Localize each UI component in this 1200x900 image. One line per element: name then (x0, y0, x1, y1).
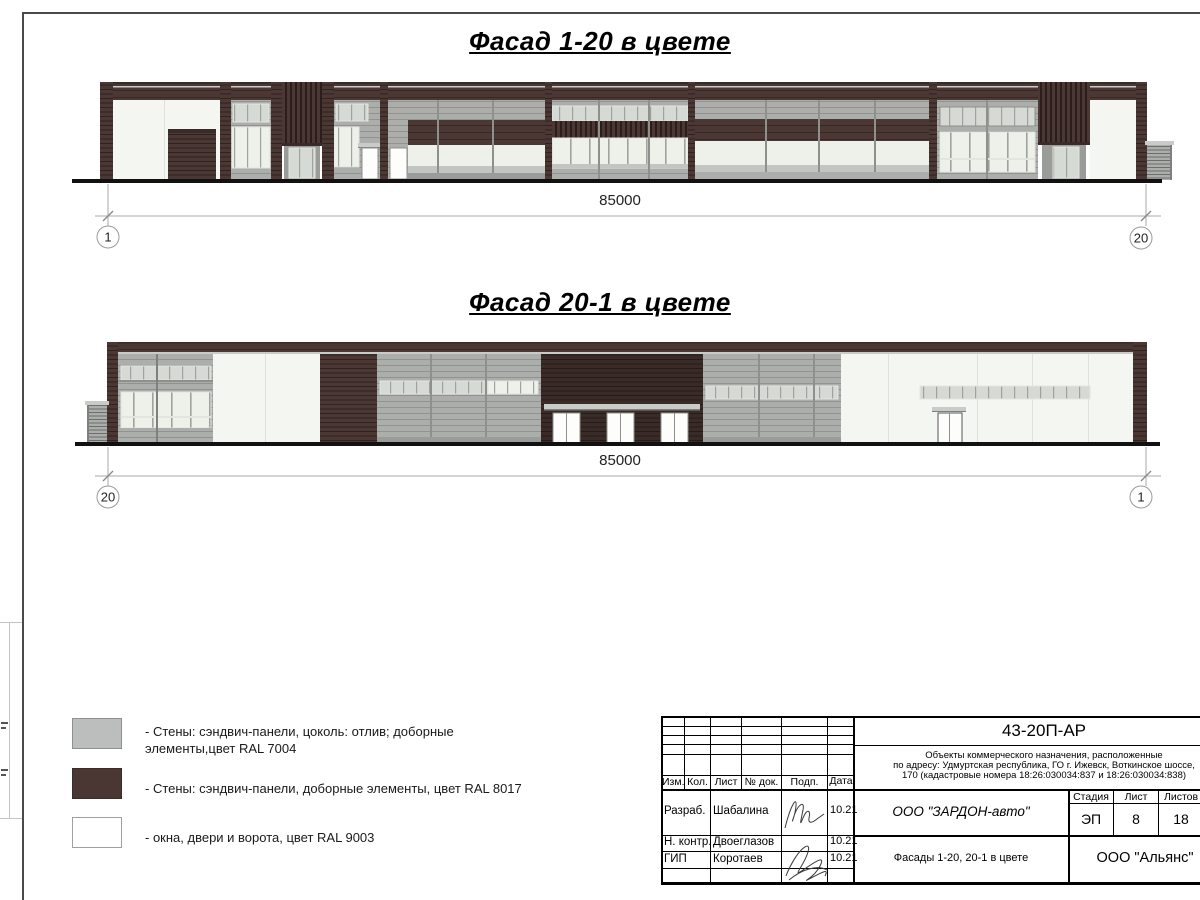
facade-panel (552, 138, 688, 168)
facade-panel (888, 354, 889, 443)
facade-panel (488, 381, 538, 394)
facade-panel (336, 104, 368, 121)
facade-panel (544, 409, 700, 411)
rev-header-ndok: № док. (742, 776, 781, 788)
rev-header-podp: Подп. (782, 776, 827, 788)
role-name: Двоеглазов (713, 836, 774, 848)
facade-panel (818, 100, 820, 172)
facade-panel (87, 405, 89, 442)
facade-panel (1133, 342, 1147, 443)
facade-panel (322, 82, 334, 180)
role-name: Шабалина (713, 805, 769, 817)
facade-panel (213, 354, 320, 443)
facade-panel (695, 119, 929, 141)
dimension-facade1: 85000 1 20 (95, 184, 1161, 249)
facade-panel (380, 82, 388, 180)
legend-label: - Стены: сэндвич-панели, доборные элемен… (145, 780, 522, 797)
facade-panel (377, 354, 541, 443)
contractor-name: ООО "Альянс" (1069, 850, 1200, 866)
facade-panel (437, 100, 439, 173)
facade-panel (1090, 100, 1136, 180)
facade-panel (220, 82, 231, 180)
axis-label: 20 (101, 490, 115, 505)
facade-panel (674, 413, 675, 443)
axis-label: 1 (1137, 490, 1144, 505)
facade-panel (758, 354, 760, 443)
facade-panel (100, 82, 113, 180)
facade-panel (929, 82, 937, 180)
project-description-line: 170 (кадастровые номера 18:26:030034:837… (854, 770, 1200, 781)
facade-panel (695, 172, 929, 180)
dimension-value: 85000 (599, 192, 641, 209)
facade-panel (408, 166, 545, 173)
facade-panel (390, 148, 407, 179)
rev-header-list: Лист (711, 776, 741, 788)
sheet-header: Лист (1114, 791, 1158, 803)
axis-label: 1 (104, 230, 111, 245)
stage-header: Стадия (1069, 791, 1113, 803)
facade-panel (648, 100, 650, 180)
sheet-value: 8 (1114, 811, 1158, 827)
facade-panel (688, 82, 695, 180)
sheets-value: 18 (1159, 811, 1200, 827)
facade-panel (232, 127, 270, 168)
facade-panel (100, 86, 1147, 88)
facade-panel (1136, 82, 1147, 180)
facade-panel (430, 354, 432, 443)
facade-panel (1147, 145, 1172, 180)
facade-panel (932, 407, 966, 411)
sheets-header: Листов (1159, 791, 1200, 803)
facade-panel (986, 100, 988, 180)
facade-1-20-elevation (72, 82, 1174, 183)
rev-header-izm: Изм. (662, 776, 684, 788)
facade-panel (233, 104, 269, 122)
legend-swatch-ral7004 (72, 718, 122, 749)
facade-panel (765, 100, 767, 172)
facade-panel (168, 129, 216, 180)
facade-panel (121, 416, 211, 418)
facade-panel (408, 100, 545, 120)
role-label: Разраб. (664, 805, 705, 817)
stage-value: ЭП (1069, 811, 1113, 827)
facade-panel (320, 354, 377, 443)
facade-panel (100, 82, 1147, 100)
facade-panel (282, 143, 322, 146)
dimension-facade2: 85000 20 1 (95, 447, 1161, 508)
rev-header-kol: Кол. (685, 776, 710, 788)
facade-panel (408, 173, 545, 180)
facade-panel (706, 386, 838, 399)
facade-panel (552, 121, 688, 138)
facade-panel (75, 442, 1160, 446)
company-name: ООО "ЗАРДОН-авто" (854, 804, 1068, 819)
facade-panel (121, 392, 211, 428)
title-block: Изм. Кол. Лист № док. Подп. Дата Разраб.… (661, 716, 1200, 884)
facade-panel (1038, 142, 1090, 145)
sheet-title: Фасады 1-20, 20-1 в цвете (854, 852, 1068, 864)
facade-panel (545, 82, 552, 180)
facade-panel (920, 386, 1090, 399)
facade-panel (87, 405, 107, 442)
facade-panel (1145, 141, 1174, 145)
facade-panel (620, 413, 621, 443)
facade-panel (932, 411, 966, 412)
facade-panel (100, 82, 1147, 84)
axis-label: 20 (1134, 231, 1148, 246)
facade-panel (118, 380, 213, 382)
rev-header-data: Дата (828, 775, 854, 787)
facade-panel (282, 82, 322, 146)
dimension-value: 85000 (599, 452, 641, 469)
facade-panel (72, 179, 1162, 183)
facade-panel (695, 100, 929, 119)
facade-panel (552, 106, 688, 121)
facade-panel (552, 164, 688, 168)
facade-panel (1170, 145, 1172, 180)
facade-panel (1053, 147, 1079, 178)
facade-panel (362, 148, 378, 179)
facade-panel (164, 100, 165, 180)
role-label: Н. контр. (664, 836, 711, 848)
facade-panel (271, 82, 282, 180)
facade-panel (544, 404, 700, 409)
facade-panel (566, 413, 567, 443)
facade-panel (813, 354, 815, 443)
legend-label: - Стены: сэндвич-панели, цоколь: отлив; … (145, 723, 454, 757)
facade-panel (121, 366, 211, 380)
facade-panel (168, 129, 216, 133)
signature (779, 792, 831, 882)
facade-panel (598, 100, 600, 180)
facade-panel (874, 100, 876, 172)
facade-panel (107, 342, 118, 443)
facade-panel (695, 165, 929, 172)
facade-panel (334, 127, 359, 167)
facade-20-1-elevation (75, 342, 1160, 446)
facade-panel (485, 354, 487, 443)
legend-swatch-ral9003 (72, 817, 122, 848)
facade-panel (1038, 82, 1090, 145)
drawing-sheet: Фасад 1-20 в цвете Фасад 20-1 в цвете (0, 0, 1200, 900)
doc-number: 43-20П-АР (854, 721, 1200, 741)
facade-panel (949, 413, 950, 443)
facade-panel (85, 401, 109, 405)
facade-panel (265, 354, 266, 443)
legend-swatch-ral8017 (72, 768, 122, 799)
facade-panel (492, 100, 494, 173)
facade-panel (289, 148, 315, 178)
role-date: 10.21 (830, 835, 858, 847)
facade-panel (408, 120, 545, 145)
facade-panel (156, 354, 158, 443)
facade-panel (107, 352, 1147, 354)
role-label: ГИП (664, 853, 687, 865)
legend-label: - окна, двери и ворота, цвет RAL 9003 (145, 829, 374, 846)
facade-panel (118, 428, 213, 443)
facade-panel (107, 342, 1147, 344)
role-name: Коротаев (713, 853, 763, 865)
